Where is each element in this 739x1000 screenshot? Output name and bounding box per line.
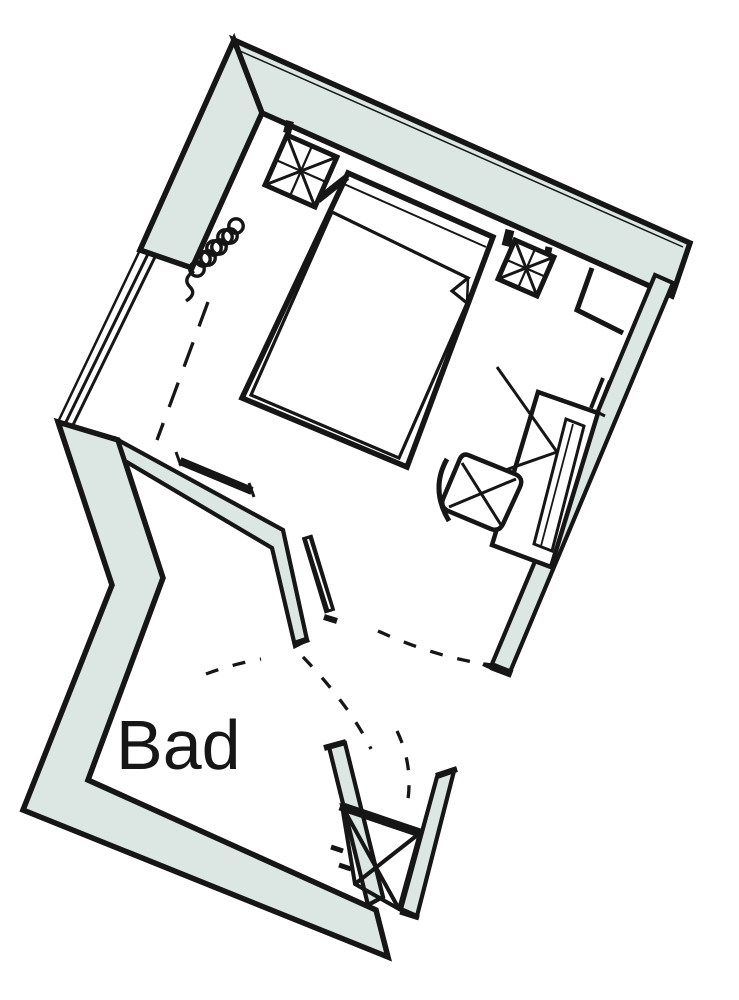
exterior-wall-left-upper [140, 40, 262, 268]
shaft-tick [331, 847, 343, 851]
double-bed [242, 173, 493, 467]
window-left [58, 250, 155, 427]
floor-plan: Bad [0, 0, 739, 1000]
room-label-bad: Bad [116, 706, 241, 784]
column-stub [287, 121, 290, 133]
door-swing-arc [397, 731, 409, 806]
door-leaf-foot [324, 617, 337, 621]
window-outer-line [58, 250, 140, 422]
door-swing-arc [378, 631, 492, 665]
dashed-ceiling-line [157, 302, 208, 440]
niche-step [577, 268, 623, 333]
floor-plan-page: Bad [0, 0, 739, 1000]
sliding-door-tick [176, 452, 181, 466]
door-leaf-highlight [308, 539, 330, 609]
window-glazing-line [65, 254, 148, 424]
bed-frame [242, 173, 493, 467]
door-swing-arc [206, 659, 261, 674]
window-glazing-line [72, 257, 155, 427]
sheet-fold-line [467, 278, 468, 303]
door-swing-arc [303, 657, 371, 749]
column-stub [506, 230, 510, 246]
shaft-tick [339, 865, 351, 869]
